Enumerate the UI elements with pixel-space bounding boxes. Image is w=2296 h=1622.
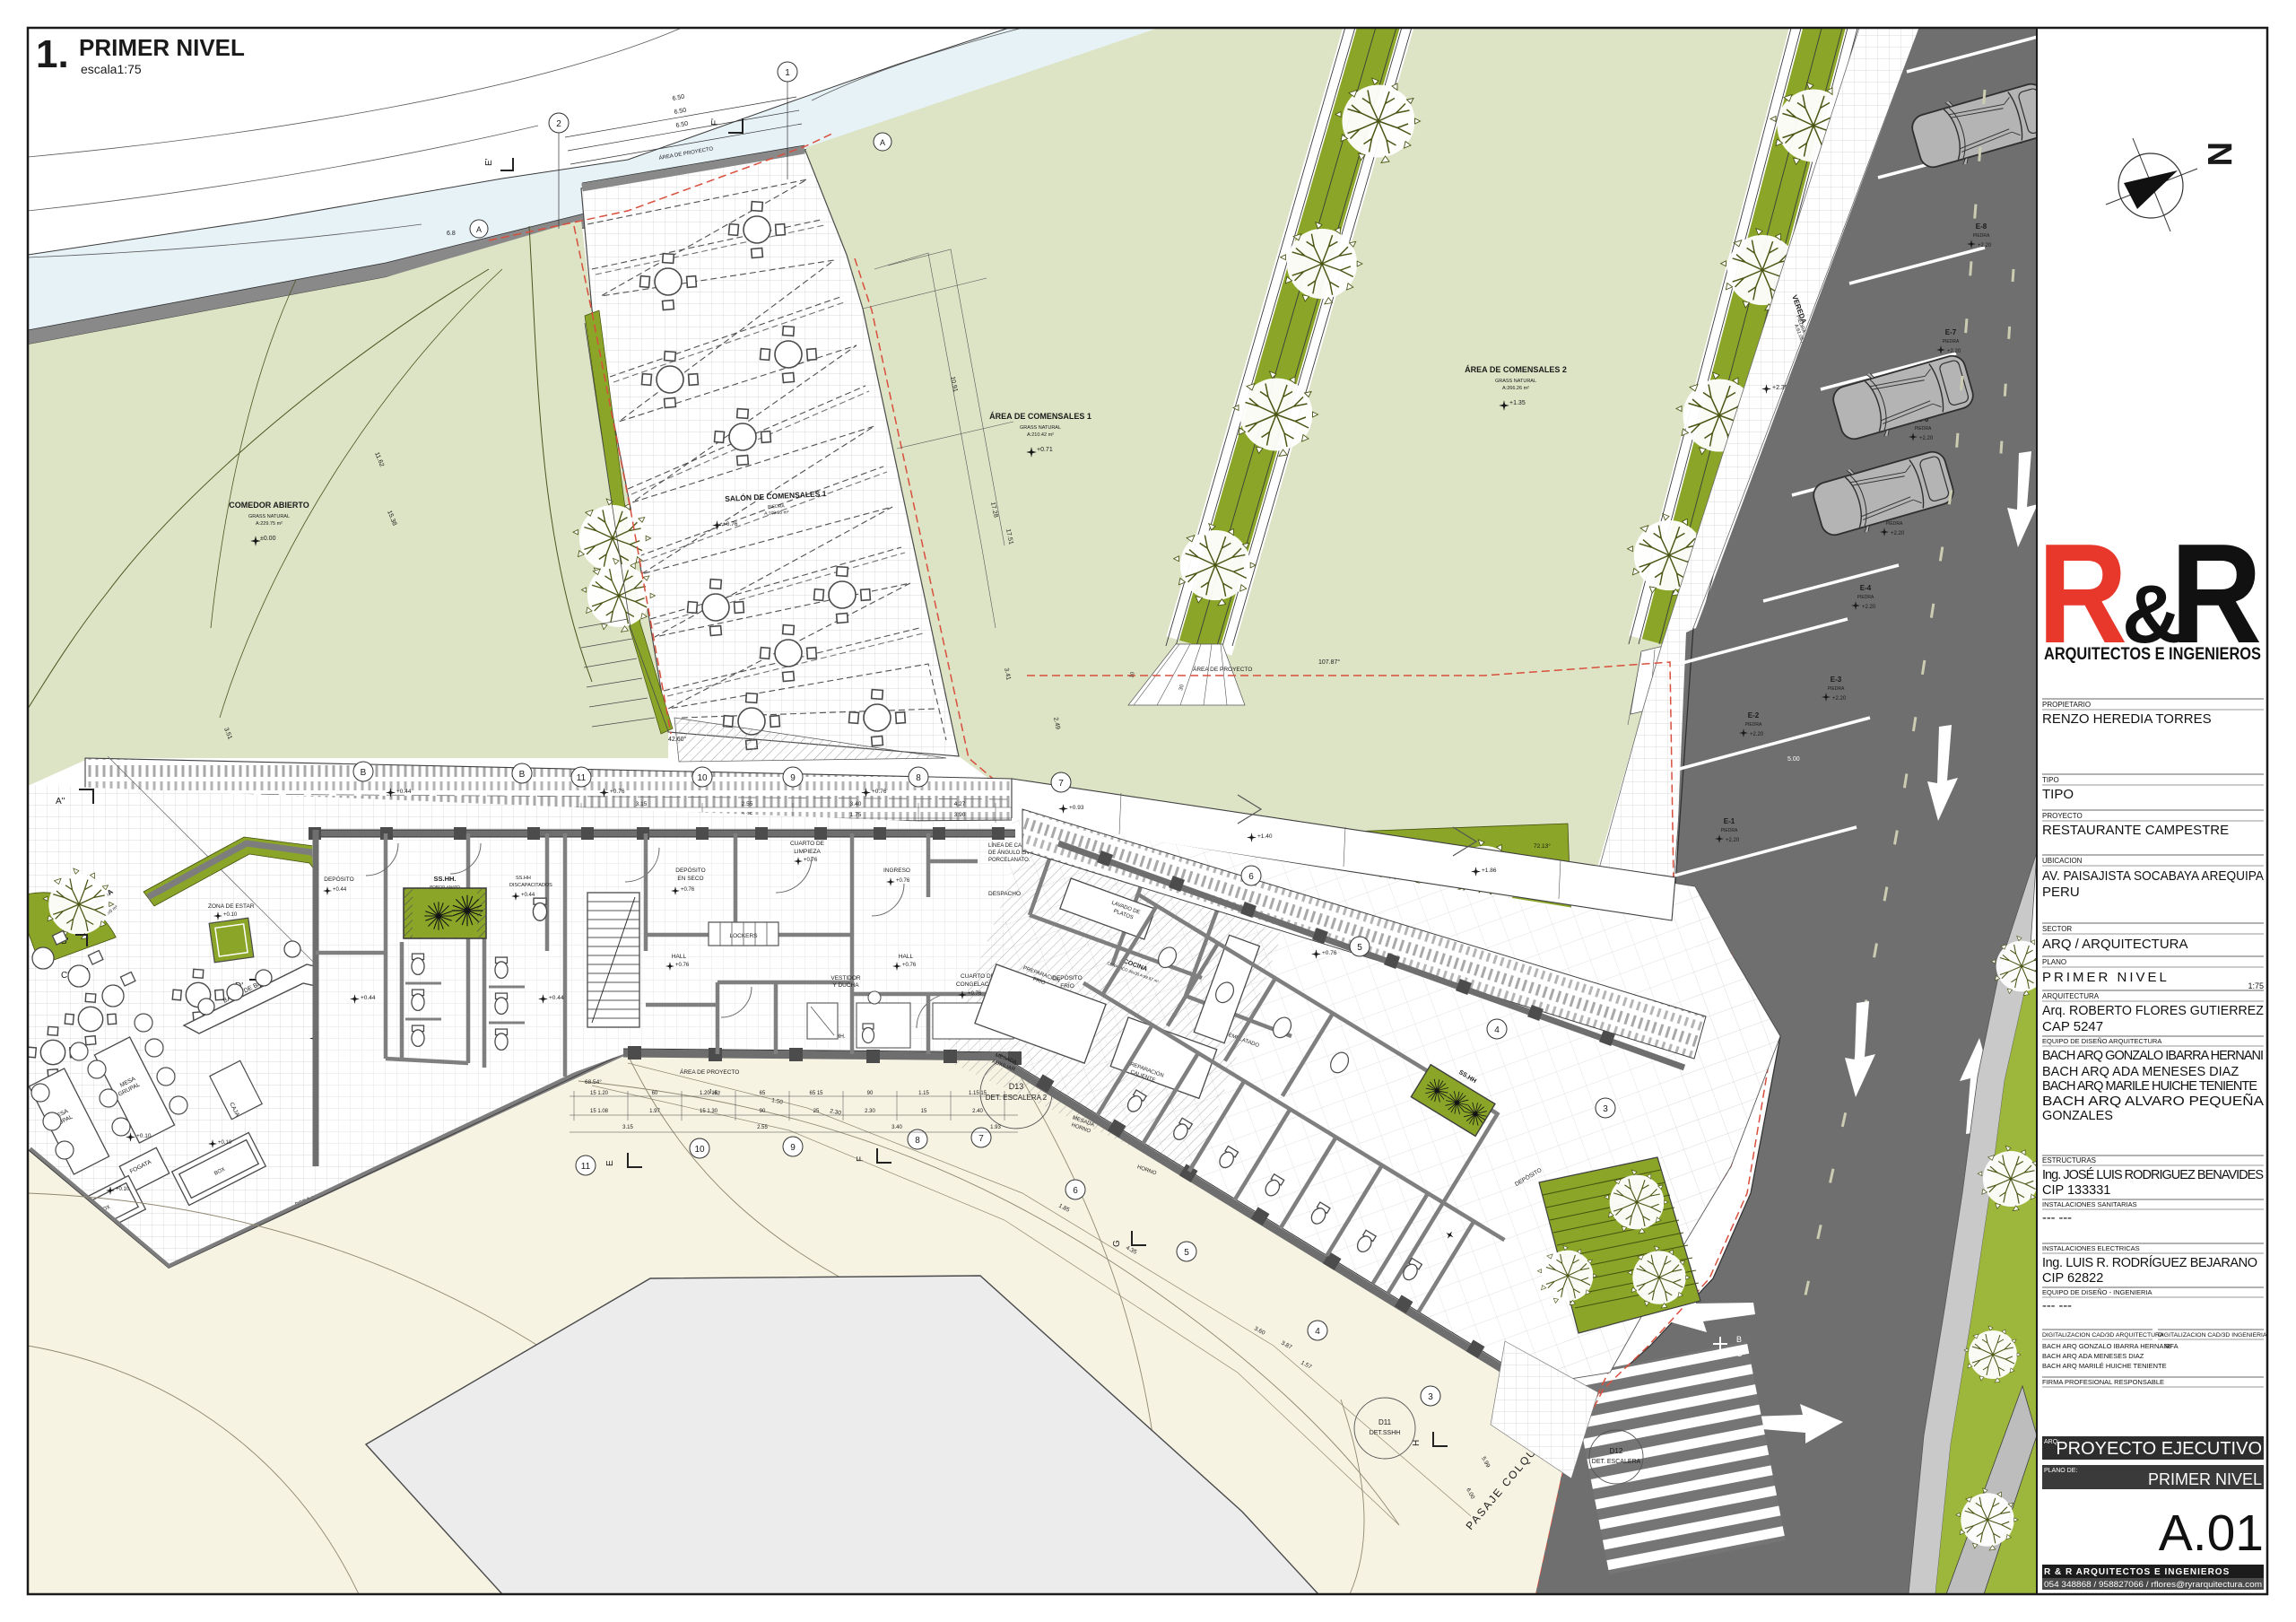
svg-text:1.15 15: 1.15 15 bbox=[969, 1091, 987, 1096]
svg-text:PIEDRA: PIEDRA bbox=[1828, 686, 1845, 692]
svg-text:+0.76: +0.76 bbox=[902, 963, 917, 968]
svg-text:RFA: RFA bbox=[2165, 1342, 2179, 1350]
svg-text:escala1:75: escala1:75 bbox=[81, 62, 142, 76]
svg-text:PIEDRA: PIEDRA bbox=[1857, 595, 1874, 600]
svg-text:ZONA DE ESTAR: ZONA DE ESTAR bbox=[208, 903, 255, 910]
svg-text:ÁREA DE COMENSALES 1: ÁREA DE COMENSALES 1 bbox=[989, 412, 1091, 421]
svg-text:+0.10: +0.10 bbox=[223, 912, 238, 918]
svg-text:+1.86: +1.86 bbox=[1482, 868, 1497, 874]
svg-text:E-1: E-1 bbox=[1724, 817, 1735, 825]
svg-text:INGRESO: INGRESO bbox=[883, 868, 910, 874]
svg-text:BACH ARQ GONZALO IBARRA HERNAN: BACH ARQ GONZALO IBARRA HERNANI bbox=[2042, 1342, 2170, 1350]
svg-text:15: 15 bbox=[921, 1109, 927, 1114]
svg-text:+0.10: +0.10 bbox=[136, 1133, 152, 1139]
svg-text:GRASS NATURAL: GRASS NATURAL bbox=[1495, 379, 1536, 384]
svg-text:+1.40: +1.40 bbox=[1257, 833, 1273, 840]
svg-text:5: 5 bbox=[1357, 943, 1362, 953]
svg-text:Arq. ROBERTO FLORES GUTIERREZ: Arq. ROBERTO FLORES GUTIERREZ bbox=[2042, 1003, 2264, 1018]
svg-text:90: 90 bbox=[867, 1091, 874, 1096]
svg-text:65: 65 bbox=[760, 1091, 766, 1096]
svg-text:ESTRUCTURAS: ESTRUCTURAS bbox=[2042, 1156, 2096, 1164]
svg-text:+0.76: +0.76 bbox=[804, 858, 818, 863]
svg-text:11: 11 bbox=[581, 1162, 591, 1172]
svg-text:+0.10: +0.10 bbox=[116, 1187, 130, 1192]
svg-text:2.40: 2.40 bbox=[972, 1109, 983, 1114]
svg-text:GRASS NATURAL: GRASS NATURAL bbox=[248, 514, 290, 519]
svg-text:F: F bbox=[856, 1156, 865, 1162]
svg-text:D12: D12 bbox=[1610, 1447, 1623, 1455]
svg-text:RESTAURANTE CAMPESTRE: RESTAURANTE CAMPESTRE bbox=[2042, 823, 2229, 838]
svg-text:PERU: PERU bbox=[2042, 885, 2080, 900]
svg-text:11: 11 bbox=[577, 773, 587, 783]
svg-text:BACH ARQ MARILE HUICHE TENIENT: BACH ARQ MARILE HUICHE TENIENTE bbox=[2042, 1079, 2257, 1094]
svg-text:N: N bbox=[2200, 142, 2238, 166]
svg-text:D11: D11 bbox=[1378, 1418, 1392, 1426]
svg-text:3: 3 bbox=[1428, 1392, 1433, 1402]
svg-text:10: 10 bbox=[694, 1145, 705, 1155]
svg-text:+0.44: +0.44 bbox=[396, 789, 412, 795]
svg-text:+2.20: +2.20 bbox=[1891, 531, 1905, 536]
svg-text:PRIMER NIVEL: PRIMER NIVEL bbox=[2042, 970, 2170, 985]
svg-text:BACH ARQ MARILÉ HUICHE TENIENT: BACH ARQ MARILÉ HUICHE TENIENTE bbox=[2042, 1362, 2167, 1370]
svg-text:E: E bbox=[605, 1160, 615, 1166]
svg-text:COMEDOR ABIERTO: COMEDOR ABIERTO bbox=[229, 501, 309, 510]
svg-text:PRIMER NIVEL: PRIMER NIVEL bbox=[2148, 1470, 2262, 1488]
svg-text:PIEDRA: PIEDRA bbox=[1886, 521, 1903, 527]
svg-text:UBICACION: UBICACION bbox=[2042, 857, 2083, 865]
svg-text:±0.00: ±0.00 bbox=[260, 536, 276, 542]
svg-text:PIEDRA: PIEDRA bbox=[1915, 426, 1932, 432]
svg-text:+2.20: +2.20 bbox=[1726, 838, 1740, 843]
svg-text:+0.76: +0.76 bbox=[681, 887, 695, 893]
svg-text:E-2: E-2 bbox=[1748, 711, 1760, 719]
svg-text:90: 90 bbox=[760, 1109, 766, 1114]
svg-text:+0.71: +0.71 bbox=[1037, 447, 1053, 453]
svg-text:3.40: 3.40 bbox=[850, 801, 862, 807]
svg-text:9: 9 bbox=[790, 1143, 796, 1153]
svg-text:PORCELANATO.: PORCELANATO. bbox=[988, 858, 1031, 863]
svg-text:1.75: 1.75 bbox=[850, 812, 862, 818]
svg-text:GRASS NATURAL: GRASS NATURAL bbox=[1020, 425, 1061, 431]
svg-text:G: G bbox=[1112, 1240, 1122, 1247]
svg-text:Ing. LUIS R. RODRÍGUEZ BEJARAN: Ing. LUIS R. RODRÍGUEZ BEJARANO bbox=[2042, 1255, 2257, 1270]
svg-text:5.00: 5.00 bbox=[1787, 756, 1800, 763]
svg-text:A:266.26 m²: A:266.26 m² bbox=[1502, 386, 1529, 391]
svg-text:R: R bbox=[951, 1022, 956, 1030]
svg-text:65 15: 65 15 bbox=[809, 1091, 823, 1096]
svg-text:HALL: HALL bbox=[672, 954, 687, 960]
svg-text:+0.76: +0.76 bbox=[872, 789, 887, 795]
svg-text:CIP 62822: CIP 62822 bbox=[2042, 1271, 2103, 1286]
svg-text:2: 2 bbox=[556, 119, 561, 129]
svg-text:DET. ESCALERA: DET. ESCALERA bbox=[1592, 1459, 1641, 1465]
svg-text:3.15: 3.15 bbox=[622, 1125, 633, 1130]
svg-text:1.: 1. bbox=[36, 32, 69, 76]
svg-text:3: 3 bbox=[1603, 1104, 1608, 1114]
svg-text:+0.76: +0.76 bbox=[675, 963, 690, 968]
svg-text:Ing. JOSÉ LUIS RODRIGUEZ BENAV: Ing. JOSÉ LUIS RODRIGUEZ BENAVIDES bbox=[2042, 1167, 2264, 1182]
svg-text:SS.HH.: SS.HH. bbox=[433, 875, 456, 883]
svg-text:6: 6 bbox=[1248, 872, 1254, 882]
svg-text:TIPO: TIPO bbox=[2042, 776, 2059, 784]
svg-text:INSTALACIONES ELECTRICAS: INSTALACIONES ELECTRICAS bbox=[2042, 1244, 2140, 1252]
svg-text:25: 25 bbox=[813, 1109, 820, 1114]
svg-text:1.15: 1.15 bbox=[918, 1091, 929, 1096]
svg-text:15 1.30: 15 1.30 bbox=[700, 1109, 718, 1114]
svg-text:EQUIPO DE DISEÑO ARQUITECTURA: EQUIPO DE DISEÑO ARQUITECTURA bbox=[2042, 1037, 2161, 1045]
svg-text:+0.76: +0.76 bbox=[1322, 950, 1337, 956]
svg-text:1.93: 1.93 bbox=[990, 1125, 1001, 1130]
svg-text:AV. PAISAJISTA SOCABAYA ARE: AV. PAISAJISTA SOCABAYA AREQUIPA bbox=[2042, 868, 2264, 884]
svg-text:107.87°: 107.87° bbox=[1318, 658, 1340, 666]
svg-text:C: C bbox=[1736, 1349, 1743, 1358]
svg-text:ARQUITECTURA: ARQUITECTURA bbox=[2042, 992, 2100, 1000]
svg-text:DET.SSHH: DET.SSHH bbox=[1370, 1430, 1401, 1436]
svg-text:+0.76: +0.76 bbox=[896, 878, 910, 884]
svg-text:BACH ARQ ALVARO PEQUEÑA: BACH ARQ ALVARO PEQUEÑA bbox=[2042, 1094, 2264, 1109]
svg-text:+0.93: +0.93 bbox=[1069, 805, 1084, 811]
svg-text:SS.HH: SS.HH bbox=[516, 876, 531, 881]
svg-text:F': F' bbox=[710, 118, 720, 126]
svg-text:CIP 133331: CIP 133331 bbox=[2042, 1183, 2110, 1198]
svg-text:B: B bbox=[361, 768, 367, 778]
svg-text:CAP 5247: CAP 5247 bbox=[2042, 1019, 2103, 1034]
svg-text:PRIMER NIVEL: PRIMER NIVEL bbox=[79, 34, 245, 61]
svg-text:+2.20: +2.20 bbox=[1947, 349, 1961, 354]
svg-text:CUARTO DE: CUARTO DE bbox=[790, 841, 825, 847]
svg-text:7: 7 bbox=[978, 1134, 984, 1144]
svg-text:2.55: 2.55 bbox=[742, 801, 753, 807]
svg-text:42.60°: 42.60° bbox=[668, 736, 687, 743]
svg-text:A:229.75 m²: A:229.75 m² bbox=[256, 521, 283, 527]
svg-text:BACH ARQ ADA MENESES DIAZ: BACH ARQ ADA MENESES DIAZ bbox=[2042, 1352, 2144, 1360]
svg-text:2.55: 2.55 bbox=[757, 1125, 768, 1130]
svg-text:R & R ARQUITECTOS E INGENIEROS: R & R ARQUITECTOS E INGENIEROS bbox=[2044, 1567, 2230, 1577]
svg-text:TIPO: TIPO bbox=[2042, 787, 2074, 802]
svg-text:A: A bbox=[476, 225, 482, 234]
svg-text:5: 5 bbox=[1184, 1248, 1189, 1258]
svg-text:68.54°: 68.54° bbox=[585, 1078, 602, 1086]
svg-text:DEPÓSITO: DEPÓSITO bbox=[324, 875, 353, 883]
svg-text:DEPÓSITO: DEPÓSITO bbox=[675, 866, 705, 874]
svg-text:DIGITALIZACION CAD/3D INGENIER: DIGITALIZACION CAD/3D INGENIERIA bbox=[2158, 1332, 2267, 1339]
svg-text:3.90: 3.90 bbox=[954, 812, 966, 818]
svg-text:+2.20: +2.20 bbox=[1832, 696, 1847, 702]
svg-text:A: A bbox=[880, 138, 885, 147]
svg-text:4: 4 bbox=[1494, 1025, 1500, 1035]
svg-text:+0.44: +0.44 bbox=[361, 995, 376, 1001]
svg-text:60: 60 bbox=[652, 1091, 658, 1096]
svg-text:B: B bbox=[519, 770, 526, 780]
svg-text:3.40: 3.40 bbox=[891, 1125, 902, 1130]
svg-text:SECTOR: SECTOR bbox=[2042, 925, 2072, 933]
svg-text:E': E' bbox=[484, 158, 494, 166]
svg-text:6.8: 6.8 bbox=[447, 231, 456, 237]
svg-text:E-7: E-7 bbox=[1945, 328, 1957, 336]
svg-text:1:75: 1:75 bbox=[2248, 981, 2264, 990]
svg-text:PORCELANATO: PORCELANATO bbox=[430, 885, 460, 889]
svg-text:+2.20: +2.20 bbox=[1919, 436, 1934, 441]
svg-text:PIEDRA: PIEDRA bbox=[1721, 828, 1738, 833]
svg-text:PLANO DE:: PLANO DE: bbox=[2044, 1468, 2077, 1474]
svg-text:ÁREA DE PROYECTO: ÁREA DE PROYECTO bbox=[1193, 665, 1252, 673]
svg-text:+2.20: +2.20 bbox=[1862, 605, 1876, 610]
svg-text:E-4: E-4 bbox=[1860, 584, 1872, 592]
svg-text:ARQ / ARQUITECTURA: ARQ / ARQUITECTURA bbox=[2042, 937, 2188, 952]
svg-text:4: 4 bbox=[1315, 1327, 1320, 1337]
svg-text:--- ---: --- --- bbox=[2042, 1299, 2072, 1313]
svg-text:054 348868 / 958827066 / rflor: 054 348868 / 958827066 / rflores@ryrarqu… bbox=[2044, 1580, 2262, 1589]
svg-text:EN SECO: EN SECO bbox=[677, 876, 703, 882]
svg-text:PROPIETARIO: PROPIETARIO bbox=[2042, 701, 2091, 709]
svg-text:--- ---: --- --- bbox=[2042, 1211, 2072, 1225]
svg-text:15 1.08: 15 1.08 bbox=[590, 1109, 609, 1114]
svg-text:+0.10: +0.10 bbox=[218, 1140, 232, 1146]
svg-text:ARQUITECTOS E INGENIEROS: ARQUITECTOS E INGENIEROS bbox=[2044, 645, 2261, 664]
svg-text:PIEDRA: PIEDRA bbox=[1973, 233, 1990, 239]
svg-text:PROYECTO: PROYECTO bbox=[2042, 812, 2083, 820]
svg-text:+2.20: +2.20 bbox=[1978, 243, 1992, 249]
svg-text:LOCKERS: LOCKERS bbox=[729, 933, 758, 939]
svg-text:+0.76: +0.76 bbox=[723, 521, 738, 528]
svg-text:7: 7 bbox=[1058, 779, 1064, 789]
svg-text:ÁREA DE PROYECTO: ÁREA DE PROYECTO bbox=[680, 1068, 739, 1076]
svg-text:FIRMA PROFESIONAL RESPONSABLE: FIRMA PROFESIONAL RESPONSABLE bbox=[2042, 1378, 2164, 1386]
svg-text:6: 6 bbox=[1073, 1186, 1078, 1196]
svg-text:LIMPIEZA: LIMPIEZA bbox=[794, 849, 821, 855]
svg-text:1.97: 1.97 bbox=[649, 1109, 660, 1114]
svg-text:BACH ARQ ADA MENESES DIAZ: BACH ARQ ADA MENESES DIAZ bbox=[2042, 1065, 2239, 1079]
svg-text:RENZO HEREDIA TORRES: RENZO HEREDIA TORRES bbox=[2042, 711, 2212, 727]
svg-text:+0.44: +0.44 bbox=[549, 995, 564, 1001]
svg-text:+2.20: +2.20 bbox=[1750, 732, 1764, 737]
svg-text:HALL: HALL bbox=[899, 954, 914, 960]
svg-text:8: 8 bbox=[916, 773, 921, 783]
svg-text:DESPACHO: DESPACHO bbox=[988, 891, 1021, 897]
svg-text:+0.44: +0.44 bbox=[333, 887, 347, 893]
svg-text:+0.44: +0.44 bbox=[521, 893, 535, 898]
svg-text:B: B bbox=[1736, 1335, 1742, 1344]
svg-text:E-3: E-3 bbox=[1831, 676, 1842, 684]
svg-text:15 1.20: 15 1.20 bbox=[590, 1091, 609, 1096]
svg-text:PIEDRA: PIEDRA bbox=[768, 503, 786, 510]
svg-text:PIEDRA: PIEDRA bbox=[1943, 339, 1960, 344]
svg-text:CUARTO DE: CUARTO DE bbox=[961, 973, 996, 980]
svg-text:1.20 15: 1.20 15 bbox=[700, 1091, 718, 1096]
svg-text:3.15: 3.15 bbox=[636, 801, 648, 807]
svg-text:10: 10 bbox=[697, 773, 708, 783]
svg-text:72.13°: 72.13° bbox=[1534, 842, 1551, 850]
svg-text:DISCAPACITADOS: DISCAPACITADOS bbox=[509, 883, 552, 888]
svg-text:1: 1 bbox=[785, 68, 790, 78]
svg-text:4.27: 4.27 bbox=[954, 801, 966, 807]
svg-text:VESTIDOR: VESTIDOR bbox=[831, 975, 861, 981]
svg-text:E-8: E-8 bbox=[1976, 222, 1987, 231]
svg-text:GONZALES: GONZALES bbox=[2042, 1109, 2113, 1123]
svg-text:ÁREA DE COMENSALES 2: ÁREA DE COMENSALES 2 bbox=[1465, 365, 1567, 374]
svg-text:8: 8 bbox=[915, 1136, 920, 1146]
svg-text:PLANO: PLANO bbox=[2042, 958, 2066, 966]
svg-text:BACH ARQ GONZALO IBARRA HERNAN: BACH ARQ GONZALO IBARRA HERNANI bbox=[2042, 1049, 2264, 1063]
svg-text:PIEDRA: PIEDRA bbox=[1745, 722, 1762, 728]
svg-text:PROYECTO EJECUTIVO: PROYECTO EJECUTIVO bbox=[2056, 1439, 2262, 1459]
svg-text:Y DUCHA: Y DUCHA bbox=[832, 982, 859, 989]
svg-text:A'': A'' bbox=[56, 797, 65, 807]
svg-text:INSTALACIONES SANITARIAS: INSTALACIONES SANITARIAS bbox=[2042, 1200, 2137, 1208]
svg-text:+0.76: +0.76 bbox=[610, 789, 625, 795]
svg-text:H: H bbox=[1412, 1440, 1422, 1446]
svg-text:A:210.42 m²: A:210.42 m² bbox=[1027, 432, 1054, 438]
svg-text:EQUIPO DE DISEÑO - INGENIERIA: EQUIPO DE DISEÑO - INGENIERIA bbox=[2042, 1288, 2152, 1296]
svg-text:+0.76: +0.76 bbox=[968, 991, 982, 997]
svg-text:2.30: 2.30 bbox=[865, 1109, 875, 1114]
svg-text:+1.35: +1.35 bbox=[1509, 400, 1526, 406]
svg-text:DIGITALIZACION CAD/3D ARQUITEC: DIGITALIZACION CAD/3D ARQUITECTURA bbox=[2042, 1332, 2164, 1339]
svg-text:9: 9 bbox=[790, 773, 796, 783]
svg-text:A.01: A.01 bbox=[2159, 1504, 2264, 1562]
